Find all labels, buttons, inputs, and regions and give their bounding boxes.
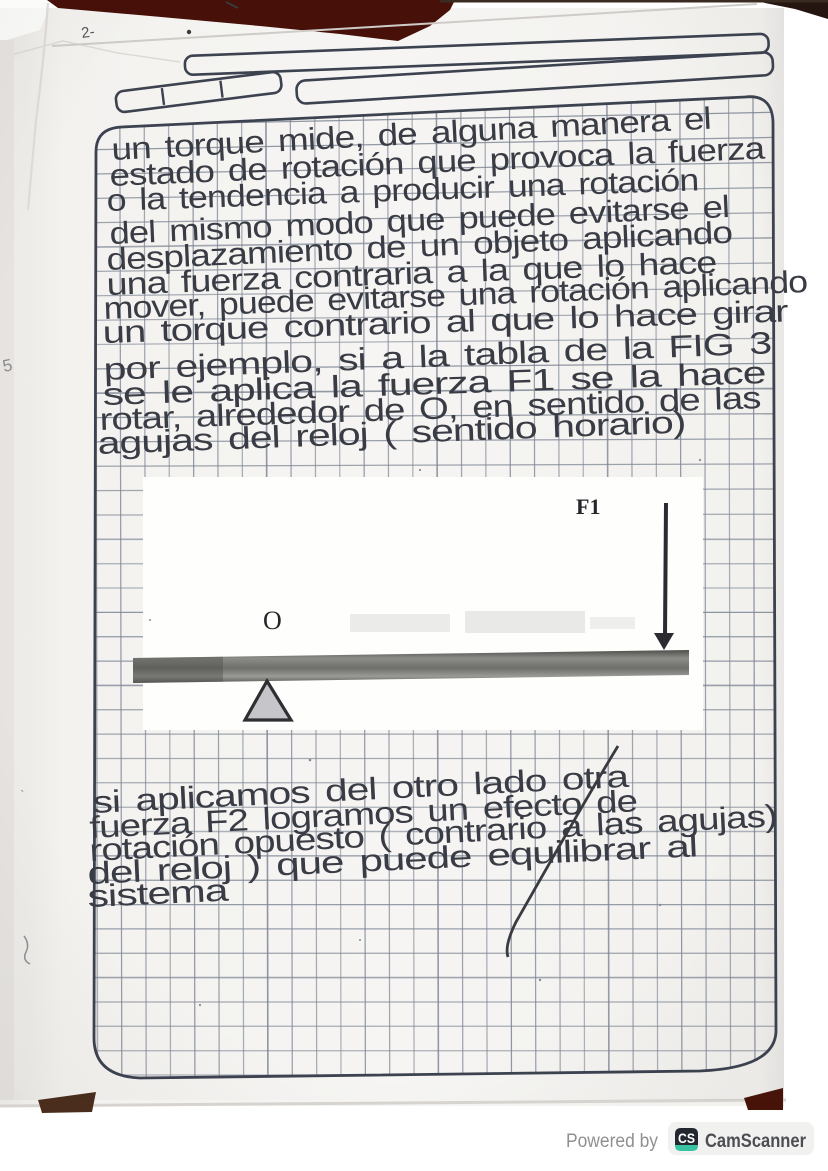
svg-text:CS: CS <box>678 1131 695 1146</box>
svg-text:Powered by: Powered by <box>566 1131 658 1152</box>
svg-text:CamScanner: CamScanner <box>705 1131 807 1152</box>
